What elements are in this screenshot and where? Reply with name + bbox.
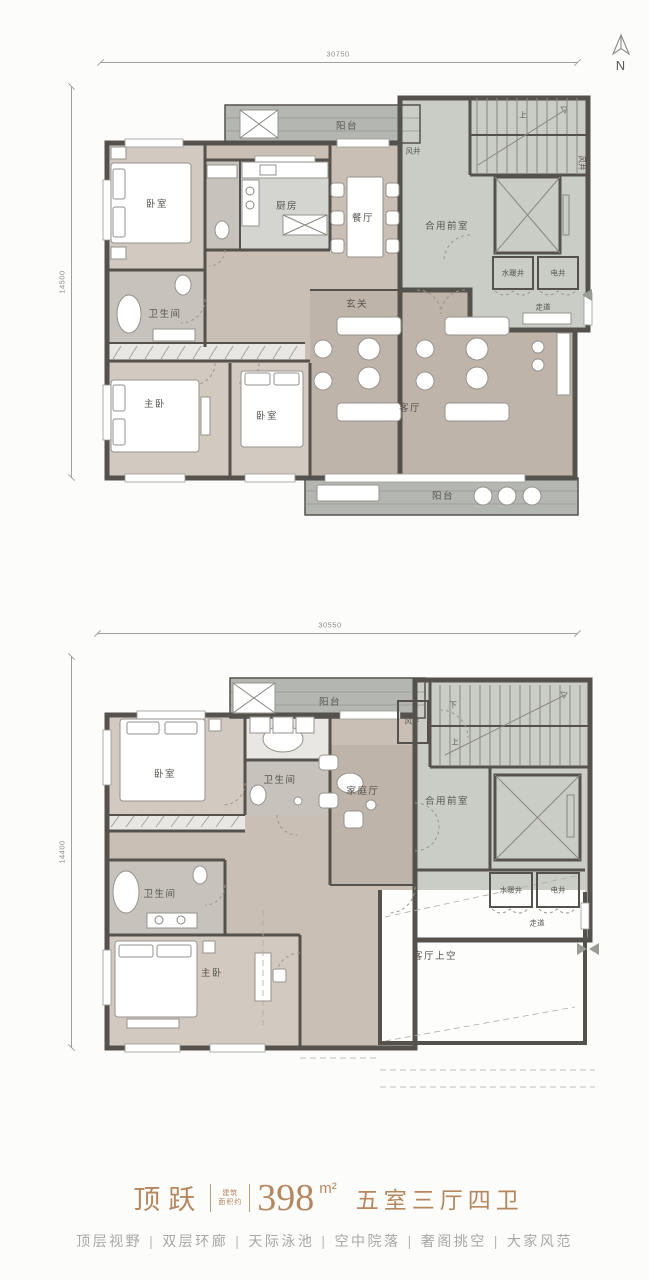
plan-title-row: 顶跃 建筑 面积约 398 m² 五室三厅四卫 [0, 1178, 649, 1217]
lower-floor-plan: 阳台 卧室 卫生间 家庭厅 风井 下 上 合用前室 水暖井 电井 走道 卫生间 … [95, 655, 605, 1095]
room-label-bath2: 卫生间 [143, 886, 176, 900]
stair-direction-label-down: 下 [449, 700, 457, 711]
feature-item: 空中院落 [335, 1233, 401, 1249]
feature-item: 奢阁挑空 [421, 1233, 487, 1249]
room-label-corridor: 走道 [536, 302, 551, 313]
dimension-line-lower-left [71, 656, 72, 1048]
equipment-platform-icon [240, 110, 278, 138]
room-label-family-room: 家庭厅 [346, 783, 379, 797]
room-label-bath1: 卫生间 [263, 772, 296, 786]
divider-bar [210, 1184, 211, 1212]
feature-separator: | [235, 1233, 241, 1249]
area-note-line2: 面积约 [218, 1198, 242, 1207]
room-label-living-void: 客厅上空 [413, 948, 457, 962]
room-label-air-shaft: 风井 [405, 716, 420, 727]
area-note: 建筑 面积约 [218, 1189, 242, 1207]
room-label-electric-shaft: 电井 [551, 885, 566, 896]
divider-bar [249, 1184, 250, 1212]
room-label-bedroom1: 卧室 [146, 196, 168, 210]
footer: 顶跃 建筑 面积约 398 m² 五室三厅四卫 顶层视野|双层环廊|天际泳池|空… [0, 1178, 649, 1251]
floor-plan-sheet: { "north": { "letter": "N" }, "dimension… [0, 0, 649, 1280]
room-label-kitchen: 厨房 [276, 198, 298, 212]
feature-item: 顶层视野 [76, 1233, 142, 1249]
room-count-title: 五室三厅四卫 [356, 1181, 524, 1215]
feature-separator: | [494, 1233, 500, 1249]
area-value: 398 [257, 1181, 314, 1215]
room-label-bedroom2: 卧室 [256, 408, 278, 422]
plan-type-title: 顶跃 [125, 1178, 203, 1217]
lower-floor-drawing [95, 655, 605, 1095]
north-indicator: N [603, 33, 639, 73]
north-letter: N [603, 58, 639, 73]
room-label-dining: 餐厅 [352, 210, 374, 224]
room-label-vestibule: 合用前室 [425, 218, 469, 232]
dimension-value-lower-left: 14400 [58, 840, 67, 863]
room-label-balcony-bottom: 阳台 [432, 488, 454, 502]
dimension-line-upper-top [100, 62, 578, 63]
room-label-bath1: 卫生间 [148, 306, 181, 320]
feature-item: 天际泳池 [248, 1233, 314, 1249]
feature-item: 大家风范 [507, 1233, 573, 1249]
feature-separator: | [408, 1233, 414, 1249]
room-label-plumbing-shaft: 水暖井 [500, 885, 523, 896]
upper-floor-plan: 阳台 风井 风井 上 厨房 餐厅 合用前室 卧室 卫生间 玄关 水暖井 电井 走… [95, 85, 595, 525]
dimension-line-upper-left [71, 86, 72, 478]
dimension-value-upper-top: 30750 [326, 50, 349, 59]
room-label-air-shaft: 风井 [406, 146, 421, 157]
room-label-living: 客厅 [399, 400, 421, 414]
room-label-corridor: 走道 [530, 918, 545, 929]
room-label-master: 主卧 [144, 396, 166, 410]
stair-direction-label-up: 上 [451, 737, 459, 748]
dimension-line-lower-top [97, 633, 578, 634]
room-label-bedroom: 卧室 [154, 766, 176, 780]
feature-separator: | [149, 1233, 155, 1249]
dimension-value-upper-left: 14500 [58, 270, 67, 293]
room-label-electric-shaft: 电井 [551, 268, 566, 279]
room-label-balcony-top: 阳台 [336, 118, 358, 132]
stair-direction-label: 上 [519, 110, 527, 121]
north-arrow-icon [609, 33, 633, 57]
dimension-value-lower-top: 30550 [318, 621, 341, 630]
area-unit: m² [319, 1180, 337, 1197]
room-label-foyer: 玄关 [346, 296, 368, 310]
room-label-vestibule: 合用前室 [425, 793, 469, 807]
room-label-balcony-top: 阳台 [319, 694, 341, 708]
area-note-line1: 建筑 [218, 1189, 242, 1198]
room-label-plumbing-shaft: 水暖井 [502, 268, 525, 279]
feature-separator: | [321, 1233, 327, 1249]
feature-list: 顶层视野|双层环廊|天际泳池|空中院落|奢阁挑空|大家风范 [0, 1231, 649, 1251]
room-label-master: 主卧 [201, 965, 223, 979]
equipment-platform-icon [233, 683, 275, 713]
room-label-air-shaft2: 风井 [577, 156, 588, 171]
feature-item: 双层环廊 [162, 1233, 228, 1249]
